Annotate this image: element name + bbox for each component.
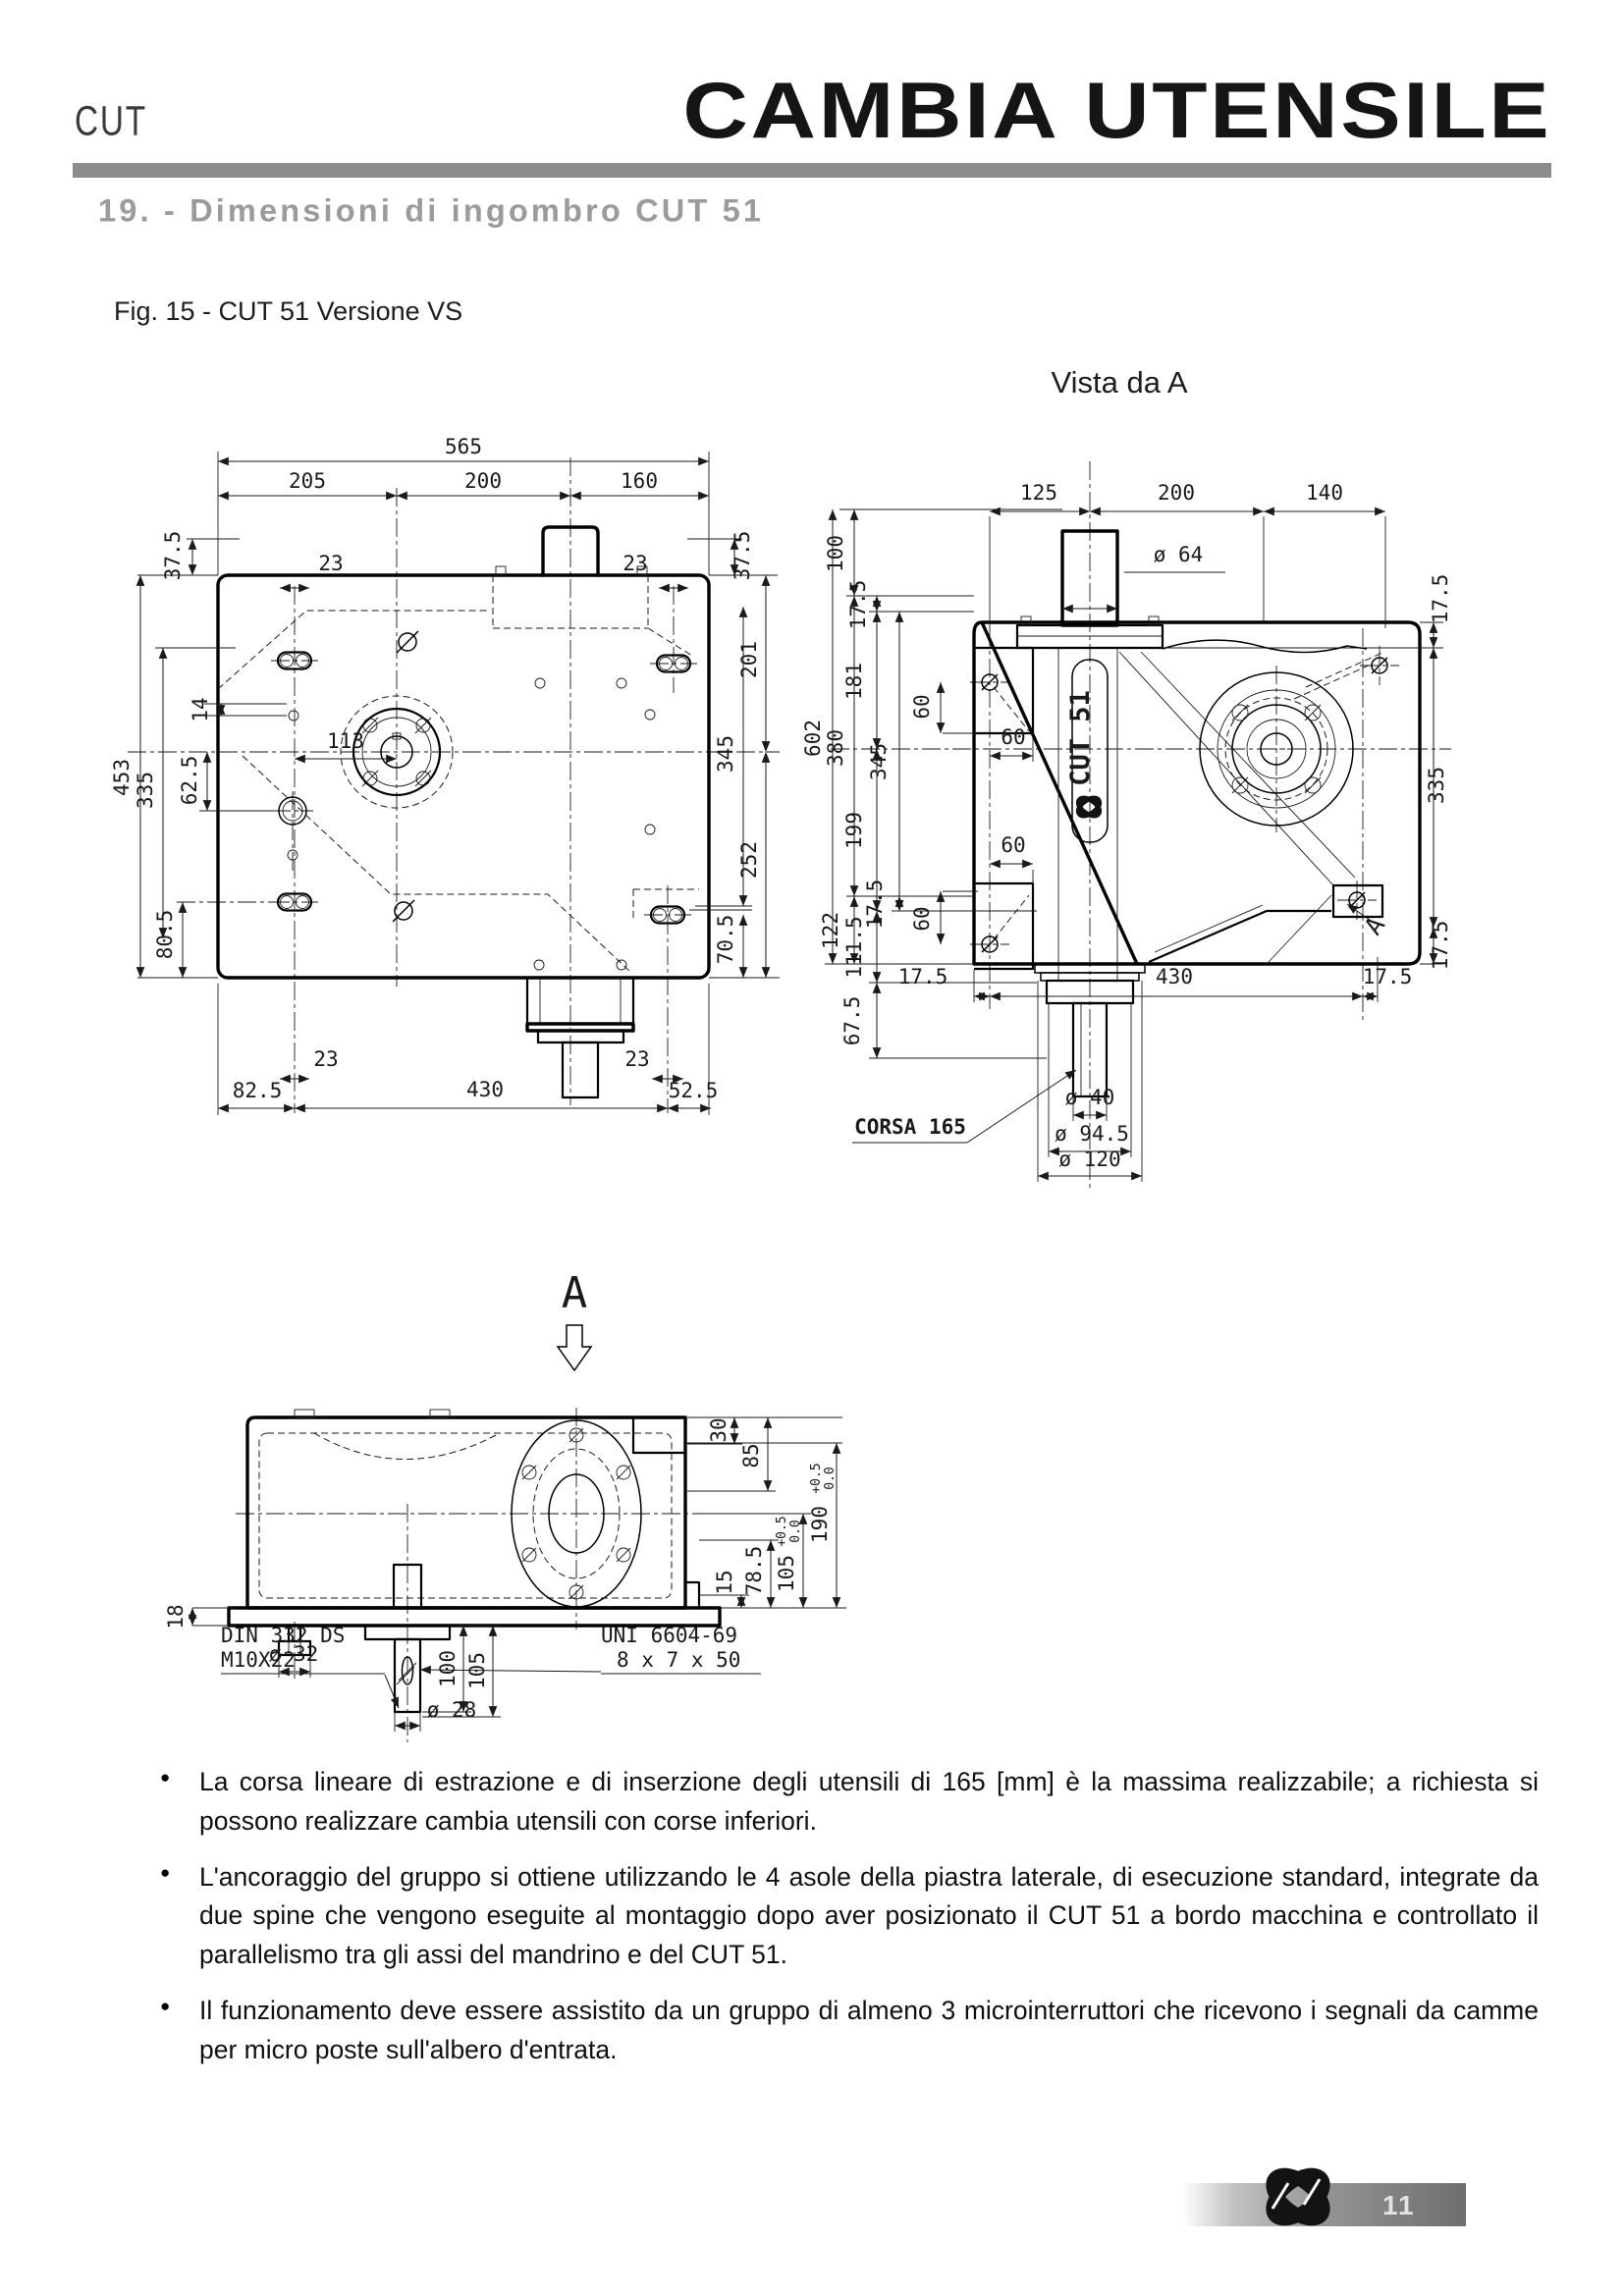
plan-view — [128, 452, 780, 1115]
dim-label: ø 94.5 — [1055, 1122, 1129, 1146]
dim-label: M10X22 — [221, 1648, 296, 1672]
dim-label: 0.0 — [823, 1467, 838, 1489]
dim-label: 140 — [1306, 481, 1343, 505]
dim-label: 345 — [714, 735, 737, 773]
dim-label: 23 — [318, 552, 343, 575]
note-item: L'ancoraggio del gruppo si ottiene utili… — [160, 1858, 1539, 1975]
front-view-direction-a — [192, 1325, 846, 1742]
dim-label: ø 120 — [1058, 1148, 1120, 1171]
dim-label: 190 — [808, 1506, 832, 1543]
dim-label: 181 — [842, 663, 866, 700]
dim-label: 52.5 — [669, 1079, 719, 1102]
dim-label: 85 — [739, 1443, 763, 1468]
dim-label: 15 — [713, 1570, 736, 1594]
dim-label: 60 — [1001, 833, 1025, 857]
dim-label: DIN 332 DS — [221, 1624, 345, 1647]
dim-label: 252 — [737, 841, 761, 879]
front-view-labels: A30851578.5105+0.50.0190+0.50.018ø 32100… — [164, 1268, 838, 1722]
dim-label: 199 — [842, 812, 866, 849]
dim-label: 17.5 — [1363, 965, 1413, 988]
notes-list: La corsa lineare di estrazione e di inse… — [160, 1763, 1539, 2086]
side-view-labels: 125200140ø 6410017.560601813453806021996… — [801, 481, 1452, 1171]
dim-label: 23 — [313, 1047, 338, 1071]
dim-label: 100 — [824, 535, 847, 572]
dim-label: 105 — [775, 1555, 798, 1592]
dim-label: 30 — [707, 1417, 731, 1442]
dim-label: 17.5 — [1429, 574, 1452, 624]
dim-label: 100 — [436, 1650, 460, 1687]
dim-label: 565 — [445, 435, 482, 458]
dim-label: 82.5 — [233, 1079, 283, 1102]
dim-label: 8 x 7 x 50 — [617, 1648, 740, 1672]
dim-label: 430 — [466, 1078, 504, 1101]
note-item: La corsa lineare di estrazione e di inse… — [160, 1763, 1539, 1842]
dim-label: 14 — [189, 697, 212, 721]
dim-label: 37.5 — [161, 531, 185, 581]
dim-label: 345 — [867, 743, 891, 780]
dim-label: 111.5 — [842, 916, 866, 978]
dim-label: 380 — [824, 729, 847, 767]
dim-label: 105 — [465, 1652, 489, 1689]
manual-page: CUT CAMBIA UTENSILE 19. - Dimensioni di … — [0, 0, 1624, 2296]
dim-label: 17.5 — [1429, 921, 1452, 971]
dim-label: ø 28 — [427, 1698, 477, 1722]
dim-label: 335 — [134, 772, 157, 809]
dim-label: 453 — [110, 759, 134, 796]
dim-label: 23 — [623, 552, 647, 575]
dim-label: 122 — [819, 912, 842, 949]
dim-label: 200 — [464, 469, 502, 493]
dim-label: 125 — [1020, 481, 1057, 505]
dim-label: 60 — [910, 694, 934, 719]
note-item: Il funzionamento deve essere assistito d… — [160, 1992, 1539, 2070]
dim-label: CORSA 165 — [854, 1115, 966, 1139]
dim-label: 60 — [910, 906, 934, 931]
dim-label: 0.0 — [788, 1520, 803, 1542]
side-view-vista-a — [825, 461, 1451, 1188]
page-number: 11 — [1382, 2190, 1461, 2221]
dim-label: +0.5 — [775, 1516, 789, 1546]
dim-label: 201 — [737, 641, 761, 678]
dim-label: 430 — [1156, 965, 1193, 988]
dim-label: ø 64 — [1154, 543, 1204, 566]
dim-label: 78.5 — [742, 1546, 766, 1596]
dim-label: 70.5 — [714, 915, 737, 965]
dim-label: 205 — [289, 469, 326, 493]
dim-label: 62.5 — [178, 756, 201, 806]
dim-label: 160 — [621, 469, 658, 493]
dim-label: 17.5 — [863, 880, 887, 930]
dim-label: 200 — [1158, 481, 1195, 505]
dim-label: 18 — [164, 1604, 188, 1629]
dim-label: 113 — [327, 729, 364, 753]
dim-label: A — [562, 1268, 588, 1318]
brand-logo-icon — [1233, 2154, 1361, 2238]
dim-label: ø 40 — [1065, 1086, 1115, 1109]
dim-label: 80.5 — [153, 910, 177, 960]
dim-label: 17.5 — [846, 580, 870, 630]
dim-label: 67.5 — [840, 996, 864, 1046]
dim-label: 602 — [801, 720, 825, 757]
dim-label: 335 — [1425, 767, 1448, 804]
technical-drawing: 565205200160232337.537.51411345333562.52… — [0, 0, 1624, 1757]
dim-label: 37.5 — [731, 531, 754, 581]
dim-label: 17.5 — [898, 965, 948, 988]
dim-label: 60 — [1001, 725, 1025, 749]
dim-label: 23 — [624, 1047, 649, 1071]
dim-label: UNI 6604-69 — [601, 1624, 737, 1647]
dim-label: CUT 51 — [1065, 690, 1096, 786]
dim-label: +0.5 — [809, 1463, 824, 1493]
